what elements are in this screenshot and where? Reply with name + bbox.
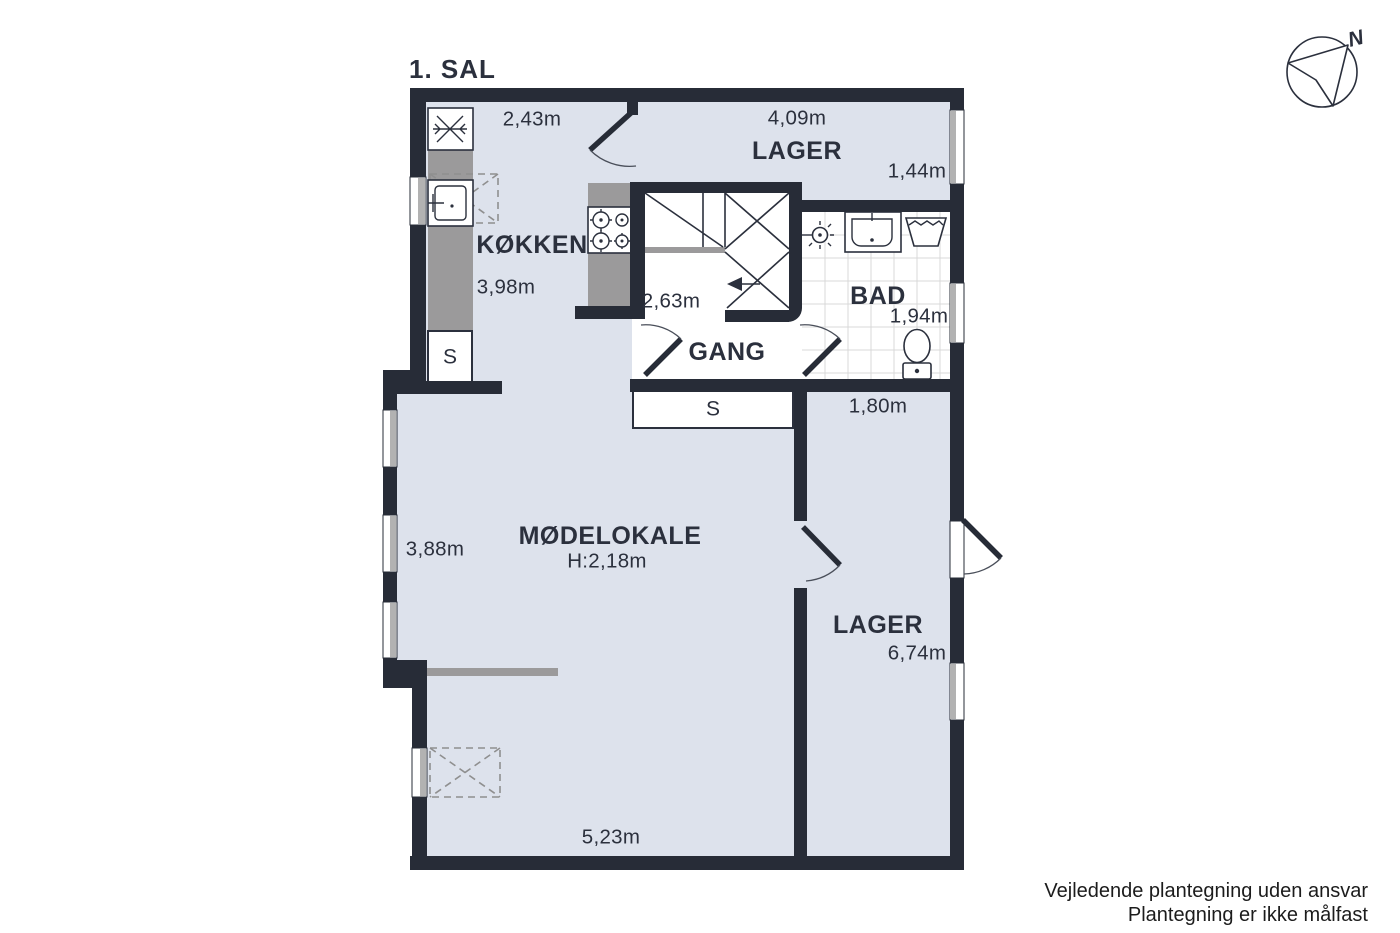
wall-stair-north [630,182,800,193]
freezer-icon [428,108,473,150]
room-label-moedelokale: MØDELOKALE [519,522,702,550]
closet-kitchen-label: S [443,346,457,369]
window-bad-east [950,283,964,343]
window-moedelokale-west-low [412,748,427,797]
dim-moedelokale-width: 5,23m [582,826,640,849]
dim-bad-width: 1,94m [890,305,948,328]
window-lager-top-east [950,110,964,184]
wall-south [410,856,964,870]
room-label-koekken: KØKKEN [476,231,587,259]
dim-koekken-width: 2,43m [503,108,561,131]
disclaimer-line-2: Plantegning er ikke målfast [1128,904,1369,926]
room-label-lager-bottom: LAGER [833,611,923,639]
dim-lager-top-depth: 1,44m [888,160,946,183]
dim-gang-width: 2,63m [642,290,700,313]
window-lager-bottom-east [950,663,964,720]
wall-lager-west-lower [794,588,807,856]
door-exterior-east [963,520,1001,574]
closet-gang-label: S [706,398,720,421]
dim-moedelokale-height: H:2,18m [567,550,647,573]
wall-kitchen-south [397,381,502,394]
floor-west-strip [397,382,424,674]
window-kitchen-west [410,177,426,225]
floorplan-drawing: N 1. SAL 2,43m 4,09m LAGER 1,44m KØKKEN … [0,0,1400,933]
room-label-lager-top: LAGER [752,137,842,165]
stove-icon [588,207,632,253]
toilet-icon [903,330,931,380]
window-moedelokale-west-1 [383,410,397,467]
compass-icon: N [1287,26,1367,107]
wall-gang-bad-south [630,379,964,392]
wall-stair-east [789,182,802,308]
page-title: 1. SAL [409,54,496,84]
floorplan-page: N 1. SAL 2,43m 4,09m LAGER 1,44m KØKKEN … [0,0,1400,933]
wall-east [950,88,964,870]
dim-moedelokale-depth: 3,88m [406,538,464,561]
dim-lager-top-width: 4,09m [768,107,826,130]
kitchen-sink-icon [428,180,473,226]
window-moedelokale-west-2 [383,515,397,572]
laundry-tub-icon [906,218,946,246]
wall-west-upper [410,88,426,384]
wall-bad-north [802,200,950,212]
washbasin-icon [845,212,901,252]
window-moedelokale-west-3 [383,602,397,658]
wall-lager-west-upper [794,392,807,521]
dim-lager-bottom-depth: 6,74m [888,642,946,665]
wall-stove-stub [575,306,638,319]
dim-lager-bottom-north-width: 1,80m [849,395,907,418]
room-label-gang: GANG [689,338,766,366]
exterior-door-opening [950,521,964,578]
stair-landing-edge [638,247,725,253]
wall-north [410,88,964,102]
dim-koekken-depth: 3,98m [477,276,535,299]
compass-north-label: N [1346,26,1367,52]
balustrade-bar [427,668,558,676]
disclaimer-line-1: Vejledende plantegning uden ansvar [1044,880,1368,902]
